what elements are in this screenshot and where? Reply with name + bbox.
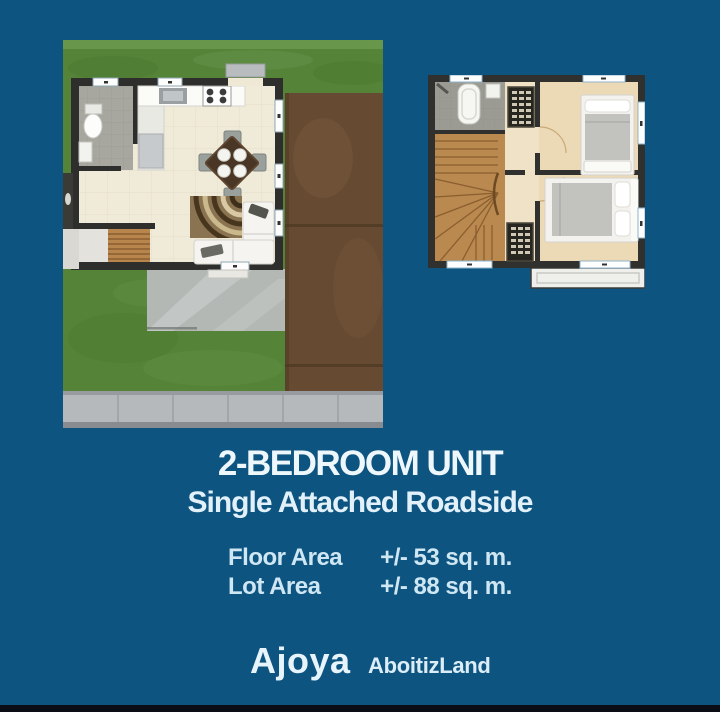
ground-floor-plan-image xyxy=(63,38,383,433)
soil-lot xyxy=(285,93,383,391)
sidewalk xyxy=(63,391,383,428)
aboitizland-logo: AboitizLand xyxy=(368,653,491,679)
second-floor-plan-image xyxy=(428,75,645,295)
pillow-icon xyxy=(585,100,630,112)
bed-single xyxy=(581,95,634,175)
bed-double xyxy=(545,178,638,242)
floor-area-row: Floor Area +/- 53 sq. m. xyxy=(228,543,512,572)
bathroom-sink-icon xyxy=(79,142,92,162)
page-subtitle: Single Attached Roadside xyxy=(0,486,720,520)
lot-area-row: Lot Area +/- 88 sq. m. xyxy=(228,572,512,601)
second-floor-plan-svg xyxy=(428,75,645,290)
roof-ledge xyxy=(531,268,645,288)
plate-icon xyxy=(218,149,231,162)
flyer-canvas: 2-BEDROOM UNIT Single Attached Roadside … xyxy=(0,0,720,712)
staircase-ground xyxy=(79,223,155,262)
pillow-icon xyxy=(615,211,630,236)
vanity-sink-icon xyxy=(486,84,500,98)
stove-icon xyxy=(203,86,231,106)
floor-area-value: +/- 53 sq. m. xyxy=(380,543,512,572)
ajoya-logo: Ajoya xyxy=(250,640,351,682)
area-specs: Floor Area +/- 53 sq. m. Lot Area +/- 88… xyxy=(228,543,512,601)
house-ground-floor xyxy=(63,64,288,278)
lot-area-value: +/- 88 sq. m. xyxy=(380,572,512,601)
footer-dark-strip xyxy=(0,705,720,712)
bathroom xyxy=(79,86,138,171)
page-title: 2-BEDROOM UNIT xyxy=(0,444,720,484)
side-slab xyxy=(63,229,79,269)
second-floor-bathroom xyxy=(435,82,505,134)
side-service-area xyxy=(63,173,73,229)
plate-icon xyxy=(234,165,247,178)
lot-area-label: Lot Area xyxy=(228,572,374,601)
patio-step xyxy=(208,270,248,278)
front-door-opening xyxy=(228,78,263,86)
plate-icon xyxy=(218,165,231,178)
plate-icon xyxy=(234,149,247,162)
pillow-icon xyxy=(615,182,630,207)
wardrobe-bottom xyxy=(507,223,533,261)
wardrobe-top xyxy=(508,87,534,127)
refrigerator-icon xyxy=(139,134,163,168)
entry-porch-step xyxy=(226,64,265,77)
staircase-second xyxy=(435,134,505,261)
toilet-tank xyxy=(85,104,102,114)
floor-area-label: Floor Area xyxy=(228,543,374,572)
ground-floor-plan-svg xyxy=(63,38,383,428)
toilet-icon xyxy=(84,114,102,138)
